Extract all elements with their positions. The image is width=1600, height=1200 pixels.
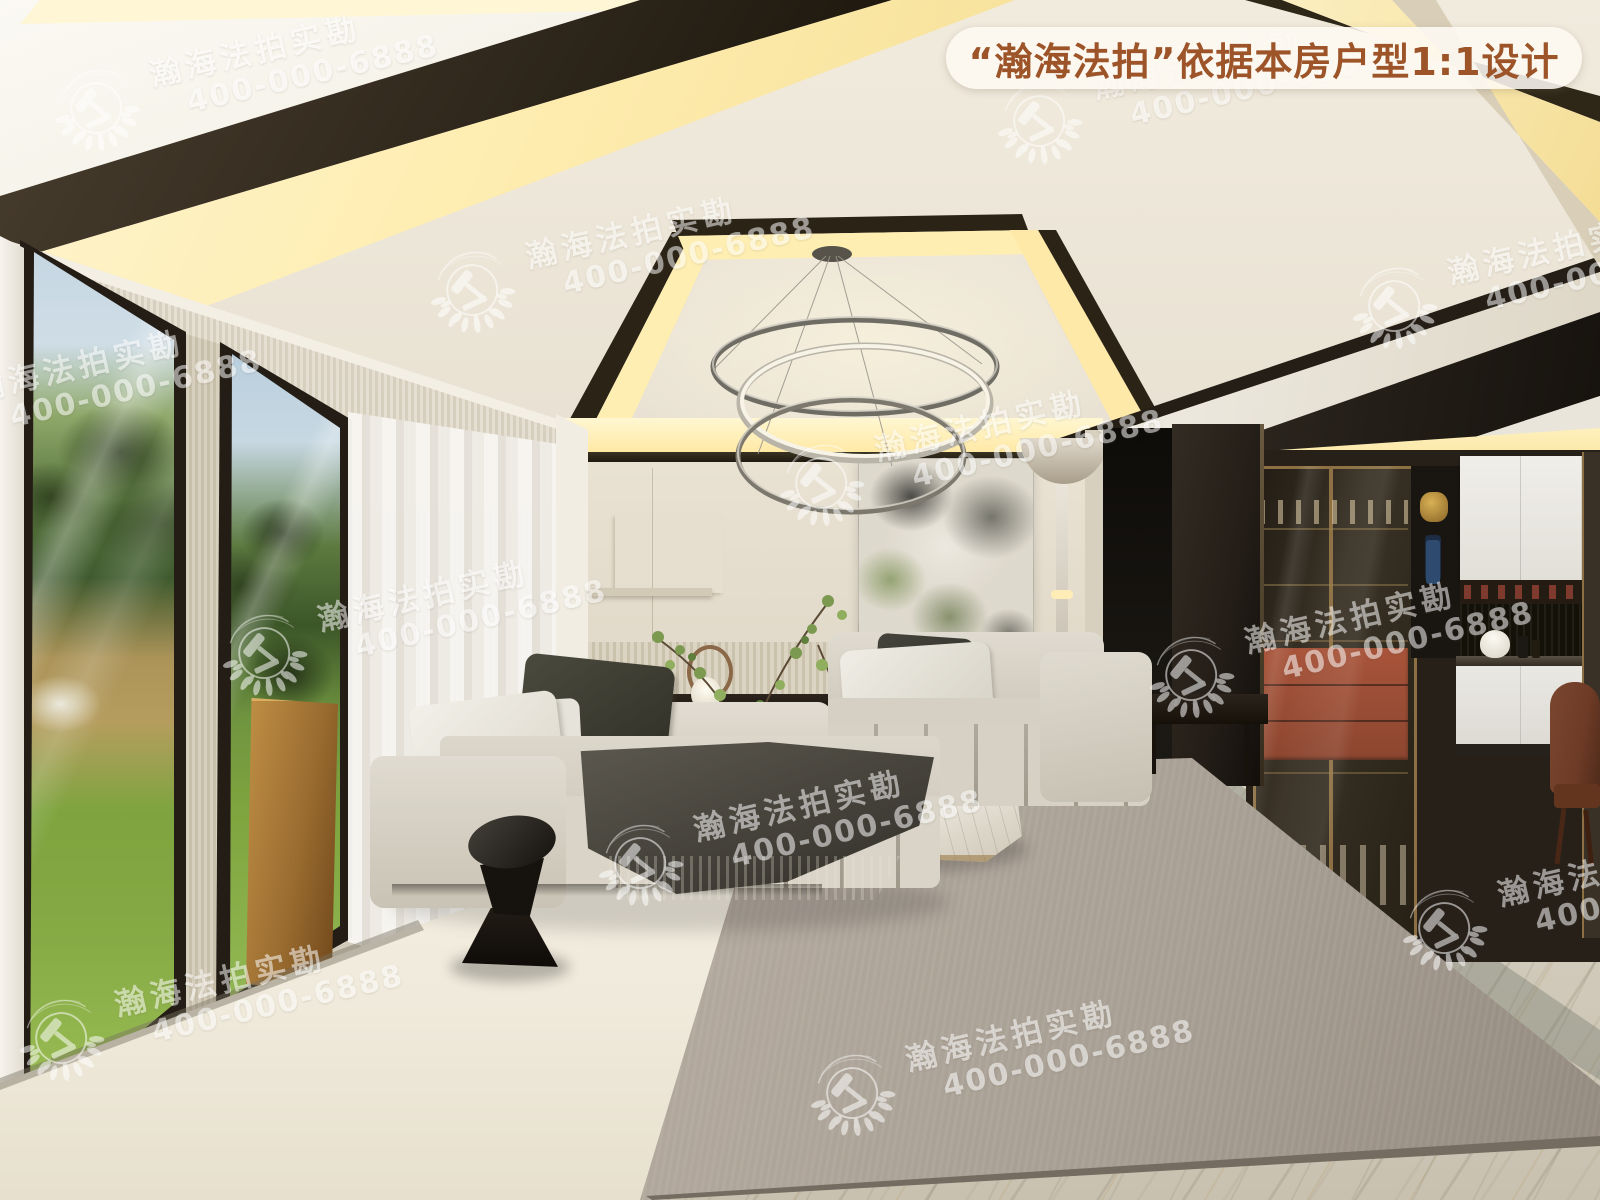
left-edge-curtain — [0, 232, 24, 1166]
gold-statue — [1420, 492, 1448, 522]
counter-bottle-2 — [1532, 640, 1540, 658]
dining-chair-leg-1 — [1555, 808, 1567, 864]
kitchen-upper-cabinets — [1460, 456, 1582, 580]
counter-vase — [1480, 630, 1510, 658]
living-room-photo: 瀚海法拍实勘 400-000-6888 瀚海法拍实勘 400-000-6888 … — [0, 0, 1600, 1200]
base-cabinet-seam — [1520, 666, 1521, 752]
dining-chair-seat — [1554, 784, 1600, 808]
counter-bottle-1 — [1518, 636, 1528, 658]
niche-bottle — [1426, 540, 1440, 584]
floor-lamp-glow-band-1 — [1051, 590, 1073, 599]
corten-planter — [246, 698, 338, 990]
wine-rack-bottles — [1464, 585, 1578, 599]
chandelier — [630, 236, 1050, 526]
throw-fringe — [600, 856, 900, 900]
partition-edge-highlight — [1260, 424, 1264, 786]
console-bench-leg-2 — [1244, 724, 1250, 782]
dining-chair-back — [1550, 682, 1600, 794]
dining-chair-leg-2 — [1583, 810, 1594, 864]
sofa-arm-right — [1040, 652, 1152, 802]
design-claim-text: “瀚海法拍”依据本房户型1:1设计 — [968, 31, 1559, 86]
upper-cabinet-seam — [1520, 456, 1521, 580]
dining-chair — [1548, 680, 1600, 870]
design-claim-banner: “瀚海法拍”依据本房户型1:1设计 — [946, 27, 1582, 89]
partition-wall — [1172, 424, 1264, 786]
